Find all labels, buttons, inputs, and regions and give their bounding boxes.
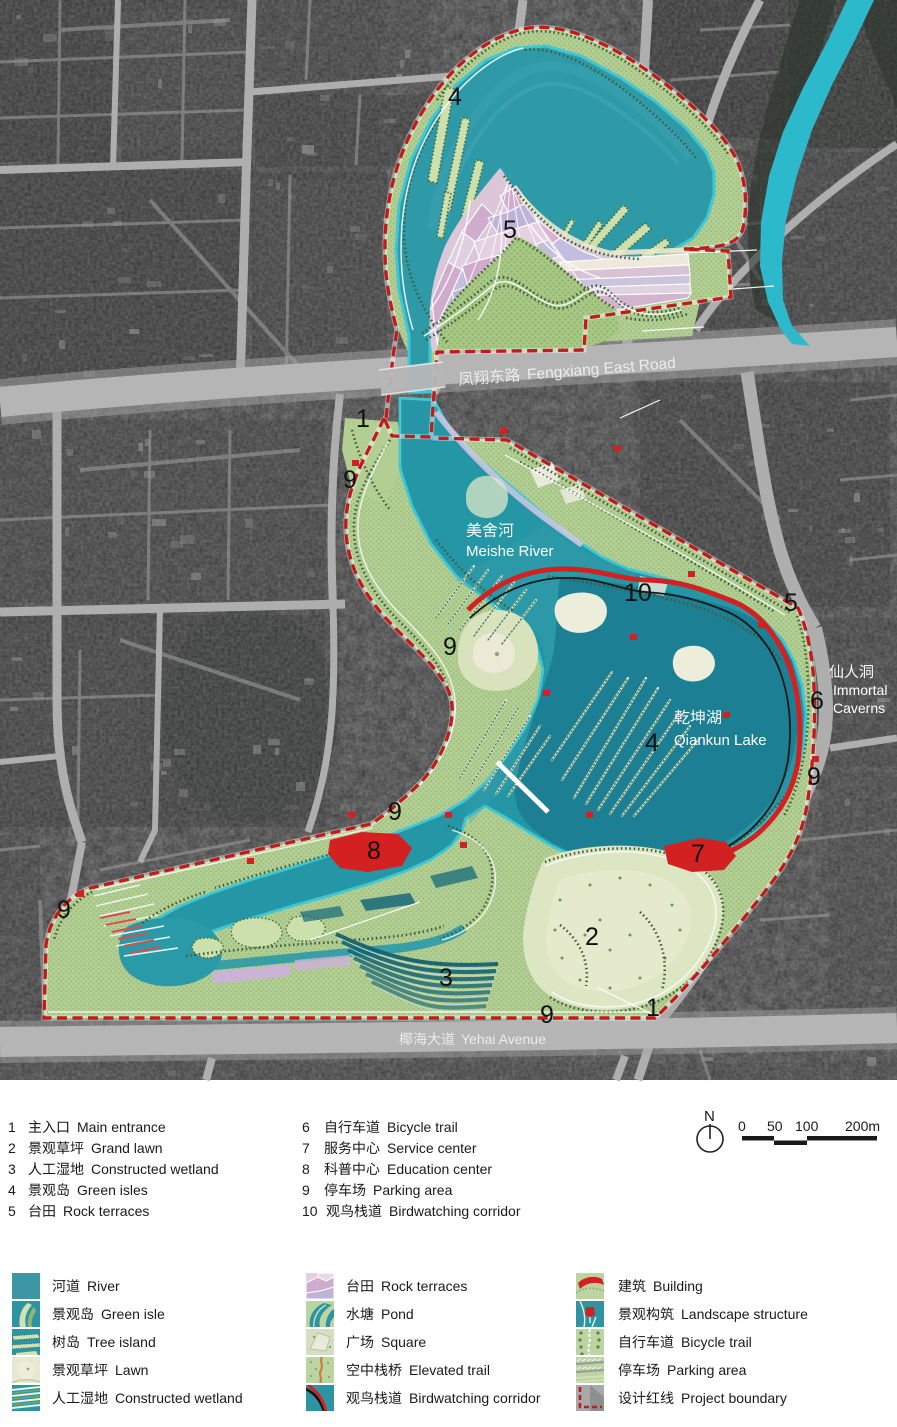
svg-text:0: 0 — [738, 1118, 746, 1134]
svg-text:1: 1 — [356, 405, 370, 433]
svg-text:4: 4 — [8, 1182, 16, 1198]
svg-text:9: 9 — [807, 763, 821, 791]
svg-text:Landscape structure: Landscape structure — [681, 1306, 808, 1322]
svg-text:Pond: Pond — [381, 1306, 414, 1322]
svg-text:10: 10 — [302, 1203, 318, 1219]
svg-text:50: 50 — [767, 1118, 783, 1134]
svg-text:Project boundary: Project boundary — [681, 1390, 787, 1406]
svg-text:4: 4 — [448, 83, 462, 111]
svg-text:100: 100 — [795, 1118, 819, 1134]
svg-text:Constructed wetland: Constructed wetland — [115, 1390, 243, 1406]
svg-text:9: 9 — [443, 633, 457, 661]
svg-text:Bicycle trail: Bicycle trail — [681, 1334, 752, 1350]
svg-text:2: 2 — [585, 923, 599, 951]
svg-text:5: 5 — [784, 589, 798, 617]
svg-text:1: 1 — [646, 994, 660, 1022]
svg-text:200m: 200m — [845, 1118, 880, 1134]
svg-text:7: 7 — [691, 840, 705, 868]
svg-text:Grand lawn: Grand lawn — [91, 1140, 163, 1156]
svg-text:6: 6 — [810, 687, 824, 715]
svg-text:5: 5 — [8, 1203, 16, 1219]
svg-text:Qiankun Lake: Qiankun Lake — [674, 732, 767, 749]
svg-text:River: River — [87, 1278, 120, 1294]
svg-text:4: 4 — [645, 729, 659, 757]
svg-text:Main entrance: Main entrance — [77, 1119, 166, 1135]
svg-text:7: 7 — [302, 1140, 310, 1156]
svg-text:Constructed wetland: Constructed wetland — [91, 1161, 219, 1177]
svg-text:Immortal: Immortal — [833, 682, 887, 698]
svg-text:Rock terraces: Rock terraces — [63, 1203, 149, 1219]
svg-text:10: 10 — [624, 579, 652, 607]
svg-text:Tree island: Tree island — [87, 1334, 156, 1350]
svg-text:Service center: Service center — [387, 1140, 477, 1156]
svg-text:N: N — [704, 1108, 715, 1125]
svg-text:8: 8 — [302, 1161, 310, 1177]
svg-text:Birdwatching corridor: Birdwatching corridor — [389, 1203, 521, 1219]
svg-text:Elevated trail: Elevated trail — [409, 1362, 490, 1378]
svg-text:3: 3 — [439, 964, 453, 992]
svg-text:3: 3 — [8, 1161, 16, 1177]
svg-text:2: 2 — [8, 1140, 16, 1156]
svg-text:Building: Building — [653, 1278, 703, 1294]
svg-text:Education center: Education center — [387, 1161, 492, 1177]
svg-text:6: 6 — [302, 1119, 310, 1135]
svg-text:Caverns: Caverns — [833, 700, 885, 716]
svg-text:5: 5 — [503, 216, 517, 244]
svg-text:Bicycle trail: Bicycle trail — [387, 1119, 458, 1135]
svg-text:Birdwatching corridor: Birdwatching corridor — [409, 1390, 541, 1406]
svg-text:Square: Square — [381, 1334, 426, 1350]
svg-text:Parking area: Parking area — [373, 1182, 453, 1198]
svg-text:9: 9 — [540, 1001, 554, 1029]
svg-text:9: 9 — [57, 896, 71, 924]
svg-text:Green isles: Green isles — [77, 1182, 148, 1198]
svg-text:Parking area: Parking area — [667, 1362, 747, 1378]
svg-text:Green isle: Green isle — [101, 1306, 165, 1322]
svg-text:Lawn: Lawn — [115, 1362, 148, 1378]
svg-text:9: 9 — [388, 798, 402, 826]
svg-text:9: 9 — [302, 1182, 310, 1198]
svg-text:8: 8 — [367, 837, 381, 865]
svg-text:1: 1 — [8, 1119, 16, 1135]
svg-text:9: 9 — [343, 466, 357, 494]
svg-text:Yehai Avenue: Yehai Avenue — [461, 1031, 546, 1047]
svg-text:Meishe River: Meishe River — [466, 543, 554, 560]
svg-text:Rock terraces: Rock terraces — [381, 1278, 467, 1294]
